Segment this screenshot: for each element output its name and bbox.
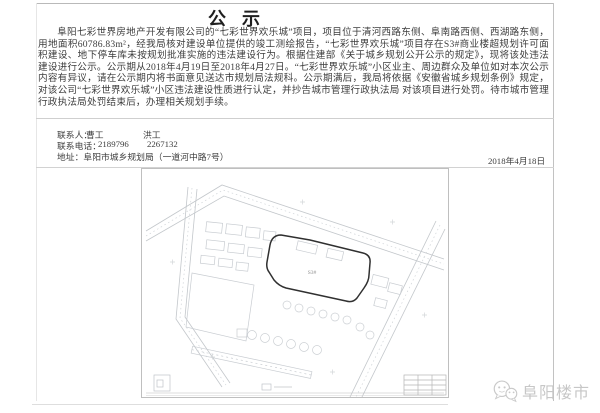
plan-highlight-parcel: S3# (267, 235, 370, 302)
plan-trees (248, 301, 375, 355)
plan-legend (154, 375, 292, 391)
document-right-border (553, 3, 554, 401)
watermark: 阜阳楼市 (492, 378, 598, 404)
document-bottom-border (32, 404, 448, 405)
plan-roads (146, 185, 445, 397)
plan-road-hatching (146, 188, 444, 397)
contacts-divider-line (36, 118, 554, 119)
wechat-icon (492, 379, 519, 403)
contact-phone-2: 2267132 (147, 139, 178, 149)
contact-address: 地址：阜阳市城乡规划局（一道河中路7号） (57, 150, 229, 163)
watermark-text: 阜阳楼市 (522, 379, 590, 403)
notice-body-paragraph: 阜阳七彩世界房地产开发有限公司的“七彩世界欢乐城”项目，项目位于清河西路东侧、阜… (38, 27, 549, 108)
document-left-border (36, 3, 37, 401)
plan-title-block (404, 375, 446, 395)
plan-building-label: S3# (308, 270, 317, 276)
notice-date: 2018年4月18日 (488, 154, 545, 167)
site-plan-image: S3# (141, 168, 449, 398)
site-plan-drawing: S3# (142, 169, 448, 397)
document-top-border (36, 3, 554, 4)
contact-phone-1: 2189796 (98, 139, 129, 149)
plan-bottom-dimension-line (146, 393, 444, 396)
